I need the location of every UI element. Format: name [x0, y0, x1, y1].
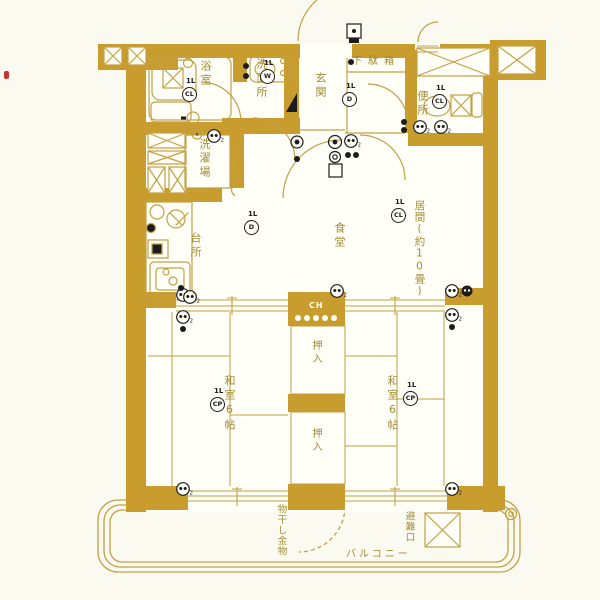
stove-knob-icon — [147, 224, 156, 233]
entrance-door-swing — [298, 0, 352, 41]
light-entrance: 1L — [346, 83, 355, 90]
label-living: 居間(約10畳) — [414, 200, 425, 298]
light-dining-type: D — [244, 220, 259, 235]
light-bathroom-type: CL — [182, 87, 197, 102]
pipe-shaft-icon — [128, 47, 146, 65]
meterbox-door-swing — [418, 22, 438, 42]
wall-closet-bottom-pier — [288, 484, 345, 510]
label-japanese-room-left: 和室6帖 — [224, 375, 235, 433]
label-balcony: バルコニー — [346, 550, 411, 560]
floor-plan: 2 — [0, 0, 600, 600]
label-closet-lower: 押入 — [310, 428, 320, 454]
wall-right — [483, 58, 498, 512]
label-japanese-room-right: 和室6帖 — [387, 375, 398, 433]
duct-shaft-icon — [169, 167, 186, 193]
pipe-shaft-icon — [104, 47, 122, 65]
interphone-icon — [347, 24, 361, 43]
emergency-hatch-icon — [425, 513, 460, 547]
wall-left — [126, 44, 146, 512]
light-living-type: CL — [391, 208, 406, 223]
light-living: 1L — [395, 199, 404, 206]
label-dining: 食堂 — [334, 222, 345, 250]
label-toilet: 便所 — [417, 90, 428, 118]
meter-shaft-icon — [148, 133, 186, 148]
label-laundry: 洗濯場 — [199, 138, 210, 180]
wall-closet-mid — [288, 394, 345, 412]
meter-shaft-icon — [148, 151, 186, 164]
drain-pipe-icon — [506, 509, 517, 520]
wall-washroom-south — [222, 118, 300, 134]
label-closet-upper: 押入 — [310, 340, 320, 366]
light-japanese-room-left-type: CP — [210, 397, 225, 412]
light-toilet: 1L — [436, 85, 445, 92]
light-japanese-room-left: 1L — [214, 388, 223, 395]
light-dining: 1L — [248, 211, 257, 218]
corner-shaft-icon — [498, 46, 536, 74]
red-scan-mark — [4, 71, 9, 79]
duct-shaft-icon — [148, 167, 165, 193]
floor-plan-drawing: 2 — [0, 0, 600, 600]
toilet-tank-icon — [451, 95, 471, 116]
light-washroom: 1L — [264, 60, 273, 67]
grease-trap-icon — [152, 244, 162, 254]
light-bathroom: 1L — [186, 78, 195, 85]
label-ch: CH — [309, 301, 324, 310]
label-laundry-hanger: 物干し金物 — [276, 504, 286, 557]
light-toilet-type: CL — [432, 94, 447, 109]
label-shoe-cabinet: 下駄箱 — [352, 57, 400, 67]
label-kitchen: 台所 — [190, 232, 201, 260]
light-entrance-type: D — [342, 92, 357, 107]
label-emergency-exit: 避難口 — [404, 511, 414, 543]
light-japanese-room-right-type: CP — [403, 391, 418, 406]
light-washroom-type: W — [260, 69, 275, 84]
label-bathroom: 浴室 — [200, 60, 211, 88]
balcony-partition-swing — [299, 506, 345, 552]
wall-toilet-south — [408, 133, 483, 146]
label-entrance: 玄関 — [315, 72, 326, 100]
light-japanese-room-right: 1L — [407, 382, 416, 389]
doorbell-icon — [329, 164, 342, 177]
